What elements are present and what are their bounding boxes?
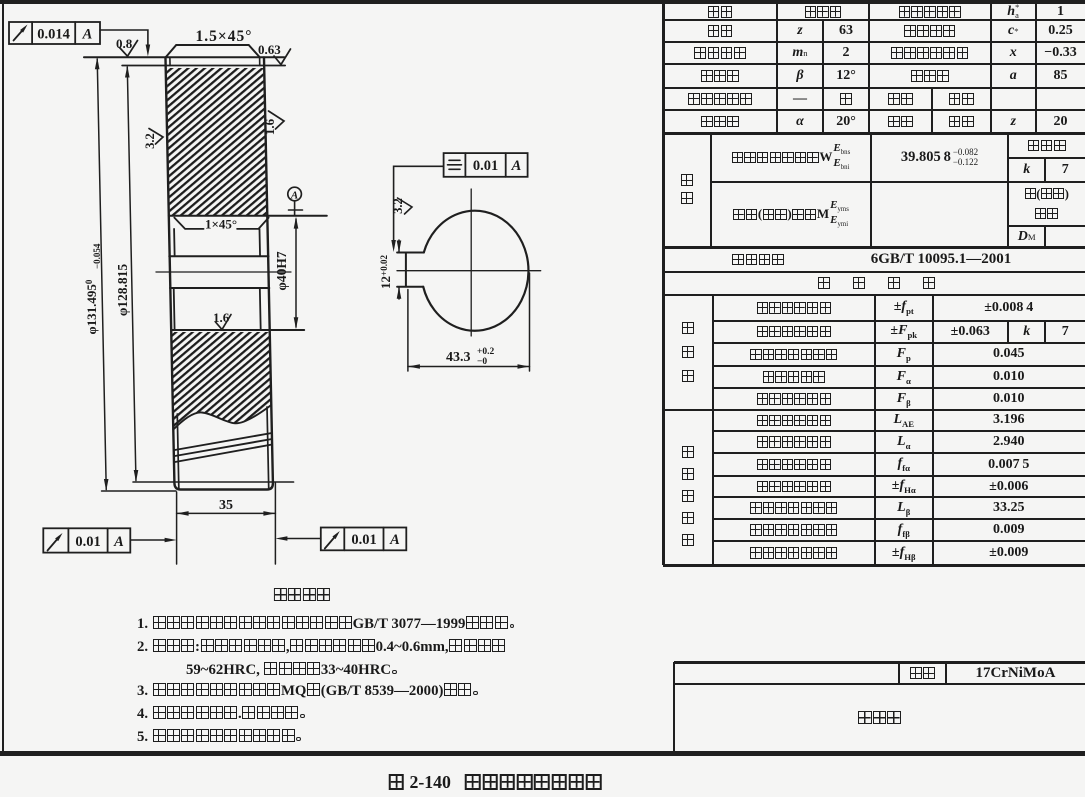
svg-text:0.8: 0.8 bbox=[116, 36, 133, 51]
svg-text:1.5×45°: 1.5×45° bbox=[196, 28, 253, 45]
svg-text:0.01: 0.01 bbox=[351, 532, 376, 548]
svg-text:1×45°: 1×45° bbox=[205, 217, 237, 232]
svg-text:A: A bbox=[511, 158, 522, 174]
svg-text:0.01: 0.01 bbox=[473, 158, 498, 174]
svg-text:−0: −0 bbox=[477, 357, 487, 367]
svg-text:3.2: 3.2 bbox=[143, 133, 157, 149]
svg-text:43.3: 43.3 bbox=[446, 350, 471, 365]
svg-text:12+0.02: 12+0.02 bbox=[378, 255, 393, 289]
svg-text:0.014: 0.014 bbox=[37, 27, 70, 43]
svg-text:φ128.815: φ128.815 bbox=[115, 264, 130, 317]
svg-text:−0.054: −0.054 bbox=[92, 243, 102, 269]
svg-text:φ131.4950: φ131.4950 bbox=[84, 279, 99, 334]
svg-text:A: A bbox=[82, 27, 93, 43]
svg-text:φ40H7: φ40H7 bbox=[274, 251, 289, 290]
svg-text:A: A bbox=[113, 534, 124, 550]
svg-text:0.01: 0.01 bbox=[75, 534, 100, 550]
svg-text:0.63: 0.63 bbox=[258, 42, 281, 57]
svg-text:A: A bbox=[389, 532, 400, 548]
svg-text:+0.2: +0.2 bbox=[477, 347, 495, 357]
svg-text:1.6: 1.6 bbox=[262, 118, 277, 135]
svg-text:35: 35 bbox=[219, 498, 233, 513]
svg-text:A: A bbox=[290, 190, 298, 202]
